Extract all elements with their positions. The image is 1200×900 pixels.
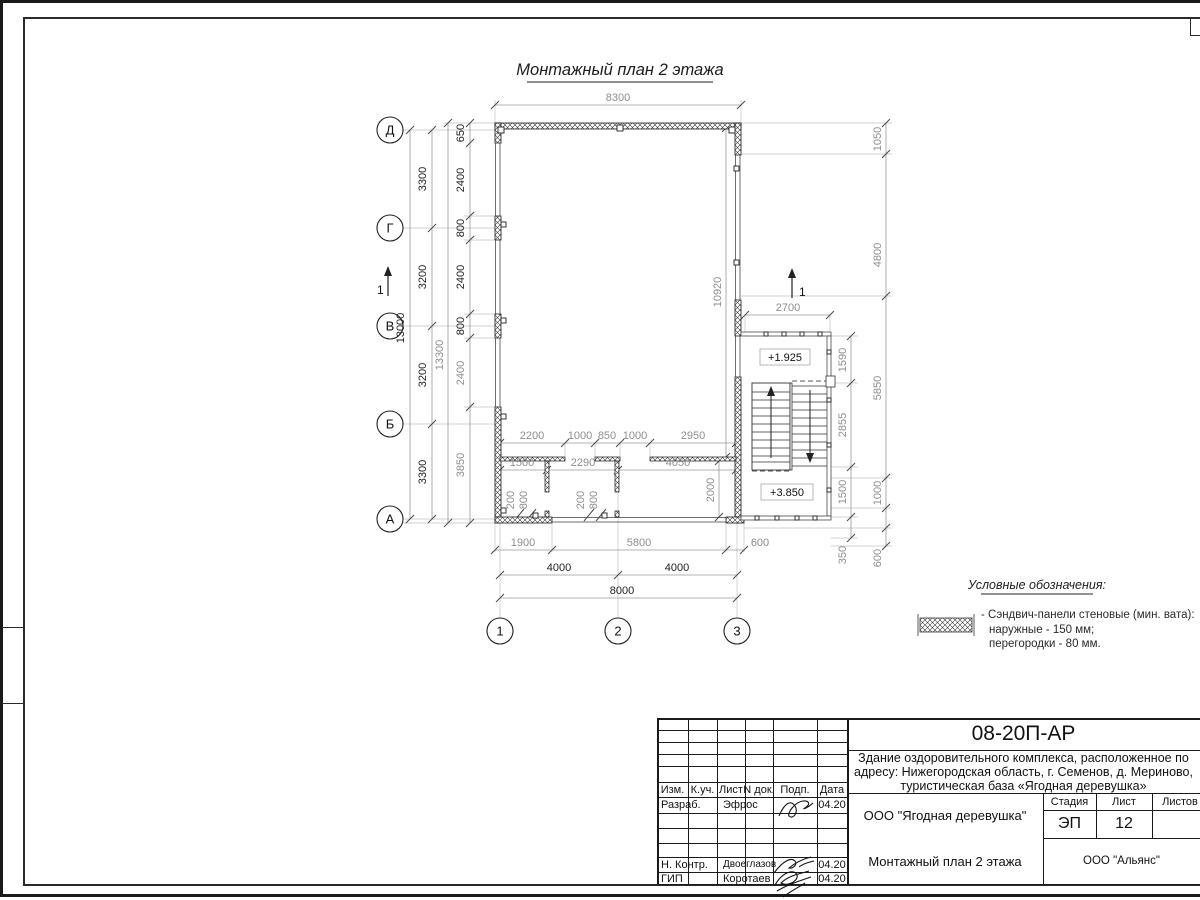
tb-date-gip: 04.20 [817,872,847,885]
dim-label: 600 [751,537,769,549]
tb-col-izm: Изм. [657,782,688,797]
tb-stage-label: Стадия [1043,793,1096,810]
dimension-lines [410,105,886,598]
legend-title: Условные обозначения: [967,578,1106,592]
dim-label: 200 [505,491,517,509]
dim-label: 800 [455,317,467,335]
tb-sheet-name: Монтажный план 2 этажа [847,838,1043,884]
dim-label: 5850 [872,376,884,400]
elevation-label: +3.850 [770,487,804,499]
dim-label: 2700 [776,302,800,314]
dim-label: 1590 [837,348,849,372]
dim-label: 2950 [681,430,705,442]
axis-row-label: Б [386,417,395,432]
dim-label: 13000 [395,313,407,344]
signature-developer [775,794,817,824]
axis-col-label: 3 [733,624,740,639]
dim-label: 3200 [417,363,429,387]
legend-swatch-sandwich-panel [920,618,972,632]
dim-label: 2400 [455,168,467,192]
tb-col-ndok: N док. [745,782,773,797]
tb-desc-line3: туристическая база «Ягодная деревушка» [847,779,1200,793]
axis-row-label: Г [386,221,393,236]
tb-stage-value: ЭП [1043,810,1096,838]
tb-contractor: ООО "Альянс" [1043,838,1200,884]
dim-label: 800 [518,491,530,509]
dimension-ticks [406,101,890,602]
dim-label: 800 [588,491,600,509]
tb-sheets-label: Листов [1152,793,1200,810]
tb-col-kuch: К.уч. [688,782,717,797]
dim-label: 600 [872,549,884,567]
legend-item-line: - Сэндвич-панели стеновые (мин. вата): [981,609,1195,621]
section-label: 1 [377,283,384,297]
tb-role-ncontrol: Н. Контр. [657,857,721,872]
tb-col-data: Дата [817,782,847,797]
dim-label: 5800 [627,537,651,549]
tb-role-developer: Разраб. [657,797,721,813]
dim-label: 350 [837,546,849,564]
dim-label: 2400 [455,265,467,289]
dim-label: 1500 [510,457,534,469]
dim-label: 2855 [837,413,849,437]
dim-label: 8300 [606,92,630,104]
axis-row-label: А [386,512,395,527]
dim-label: 4000 [547,562,571,574]
dim-label: 200 [575,491,587,509]
axis-row-label: В [386,319,395,334]
dim-label: 2290 [571,457,595,469]
dim-label: 3300 [417,460,429,484]
axis-col-label: 2 [614,624,621,639]
tb-desc-line1: Здание оздоровительного комплекса, распо… [847,751,1200,765]
stair-divider [790,383,792,470]
dim-label: 1050 [872,127,884,151]
dim-label: 4000 [665,562,689,574]
tb-name-developer: Эфрос [719,797,777,813]
tb-role-gip: ГИП [657,872,721,885]
dim-label: 3200 [417,265,429,289]
dim-label: 13300 [434,340,446,371]
section-label: 1 [799,285,806,299]
dim-label: 4050 [666,457,690,469]
dim-label: 1900 [511,537,535,549]
dim-label: 4800 [872,243,884,267]
legend-item-line: перегородки - 80 мм. [989,638,1101,650]
drawing-sheet: { "sheet": { "title": "Монтажный план 2 … [0,0,1200,900]
dim-label: 2400 [455,361,467,385]
legend-item-line: наружные - 150 мм; [989,624,1094,636]
dim-label: 10920 [712,277,724,308]
tb-sheet-label: Лист [1096,793,1152,810]
dim-label: 8000 [610,585,634,597]
dim-label: 1500 [837,480,849,504]
tb-desc-line2: адресу: Нижегородская область, г. Семено… [847,765,1200,779]
dim-label: 2000 [705,478,717,502]
axis-row-label: Д [386,123,395,138]
signature-gip [769,865,817,899]
dim-label: 1000 [568,430,592,442]
tb-sheet-value: 12 [1096,810,1152,838]
dim-label: 2200 [520,430,544,442]
dim-label: 650 [455,124,467,142]
plan-title: Монтажный план 2 этажа [516,61,723,79]
dim-label: 850 [598,430,616,442]
tb-doc-number: 08-20П-АР [847,718,1200,750]
dim-label: 3850 [455,453,467,477]
legend: Условные обозначения: - Сэндвич-панели с… [918,578,1195,650]
tb-date-developer: 04.20 [817,797,847,813]
dim-label: 3300 [417,167,429,191]
tb-date-ncontrol: 04.20 [817,857,847,872]
tb-org: ООО "Ягодная деревушка" [847,793,1043,838]
title-block: Изм. К.уч. Лист N док. Подп. Дата Разраб… [657,718,1200,885]
section-mark-left: 1 [377,266,392,297]
section-mark-right: 1 [788,268,806,299]
dim-label: 1000 [623,430,647,442]
dim-label: 1000 [872,481,884,505]
axis-col-label: 1 [496,624,503,639]
elevation-marks: +1.925 +3.850 [760,349,813,500]
stair-wall-niche [826,376,835,387]
elevation-label: +1.925 [768,352,802,364]
tb-col-list: Лист [717,782,745,797]
dim-label: 800 [455,219,467,237]
stair-up-arrowhead [767,386,775,396]
